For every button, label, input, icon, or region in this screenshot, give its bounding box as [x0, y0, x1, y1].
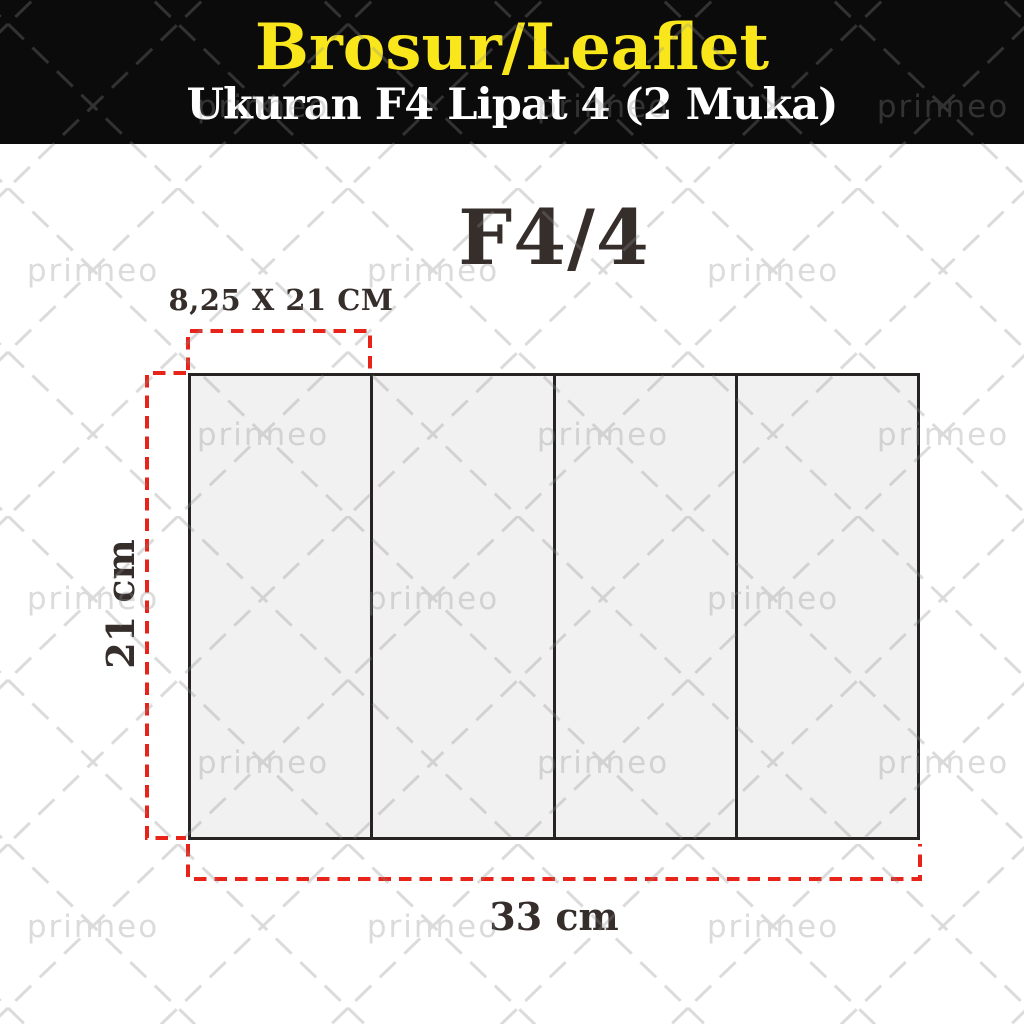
- header-banner: Brosur/Leaflet Ukuran F4 Lipat 4 (2 Muka…: [0, 0, 1024, 144]
- sheet-height-bracket: [147, 373, 186, 838]
- folded-sheet: [188, 373, 920, 840]
- sheet-panel-4: [738, 376, 917, 837]
- sheet-width-bracket: [188, 844, 920, 879]
- format-label: F4/4: [254, 198, 854, 278]
- panel-size-label: 8,25 X 21 CM: [150, 284, 412, 316]
- panel-width-bracket: [188, 331, 370, 370]
- height-dimension-label: 21 cm: [90, 544, 150, 664]
- page-subtitle: Ukuran F4 Lipat 4 (2 Muka): [186, 82, 837, 128]
- leaflet-size-infographic: Brosur/Leaflet Ukuran F4 Lipat 4 (2 Muka…: [0, 0, 1024, 1024]
- sheet-panel-2: [373, 376, 555, 837]
- width-dimension-label: 33 cm: [454, 894, 654, 939]
- sheet-panel-3: [556, 376, 738, 837]
- page-title: Brosur/Leaflet: [255, 16, 769, 80]
- sheet-panel-1: [191, 376, 373, 837]
